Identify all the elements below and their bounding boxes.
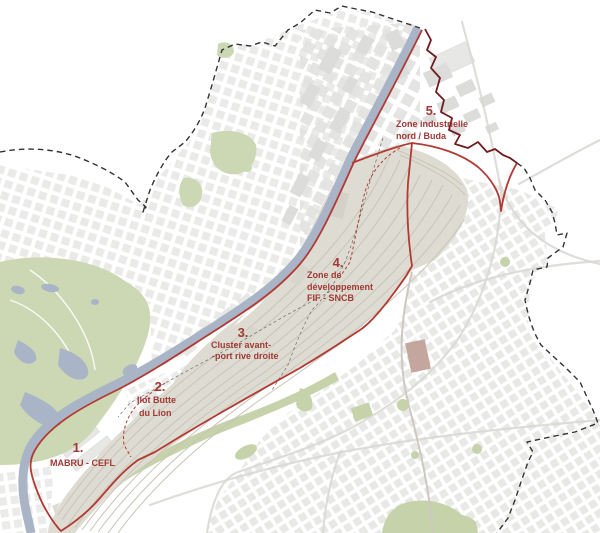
zone-3-name: Cluster avant- (211, 340, 271, 350)
zone-2-number: 2. (155, 379, 166, 394)
planning-map: 1. MABRU - CEFL 2. Ilot Butte du Lion 3.… (0, 0, 600, 533)
green-dot (472, 444, 482, 454)
zone-1-name: MABRU - CEFL (50, 458, 115, 468)
zone-2-name: du Lion (139, 408, 172, 418)
zone-2-name: Ilot Butte (137, 395, 176, 405)
zone-4-number: 4. (333, 255, 344, 270)
zone-5-number: 5. (426, 103, 437, 118)
zone-5-name: Zone industrielle (396, 119, 468, 129)
green-dot (500, 257, 510, 267)
zone-4-name: développement (307, 282, 373, 292)
zone-4-name: FIF - SNCB (307, 293, 354, 303)
zone-4-name: Zone de (307, 270, 342, 280)
zone-1-number: 1. (73, 440, 84, 455)
green-patch (242, 164, 252, 172)
zone-5-name: nord / Buda (396, 131, 447, 141)
zone-3-name: -port rive droite (212, 351, 279, 361)
zone-3-number: 3. (238, 325, 249, 340)
green-dot (411, 451, 419, 459)
map-canvas: 1. MABRU - CEFL 2. Ilot Butte du Lion 3.… (0, 0, 600, 533)
